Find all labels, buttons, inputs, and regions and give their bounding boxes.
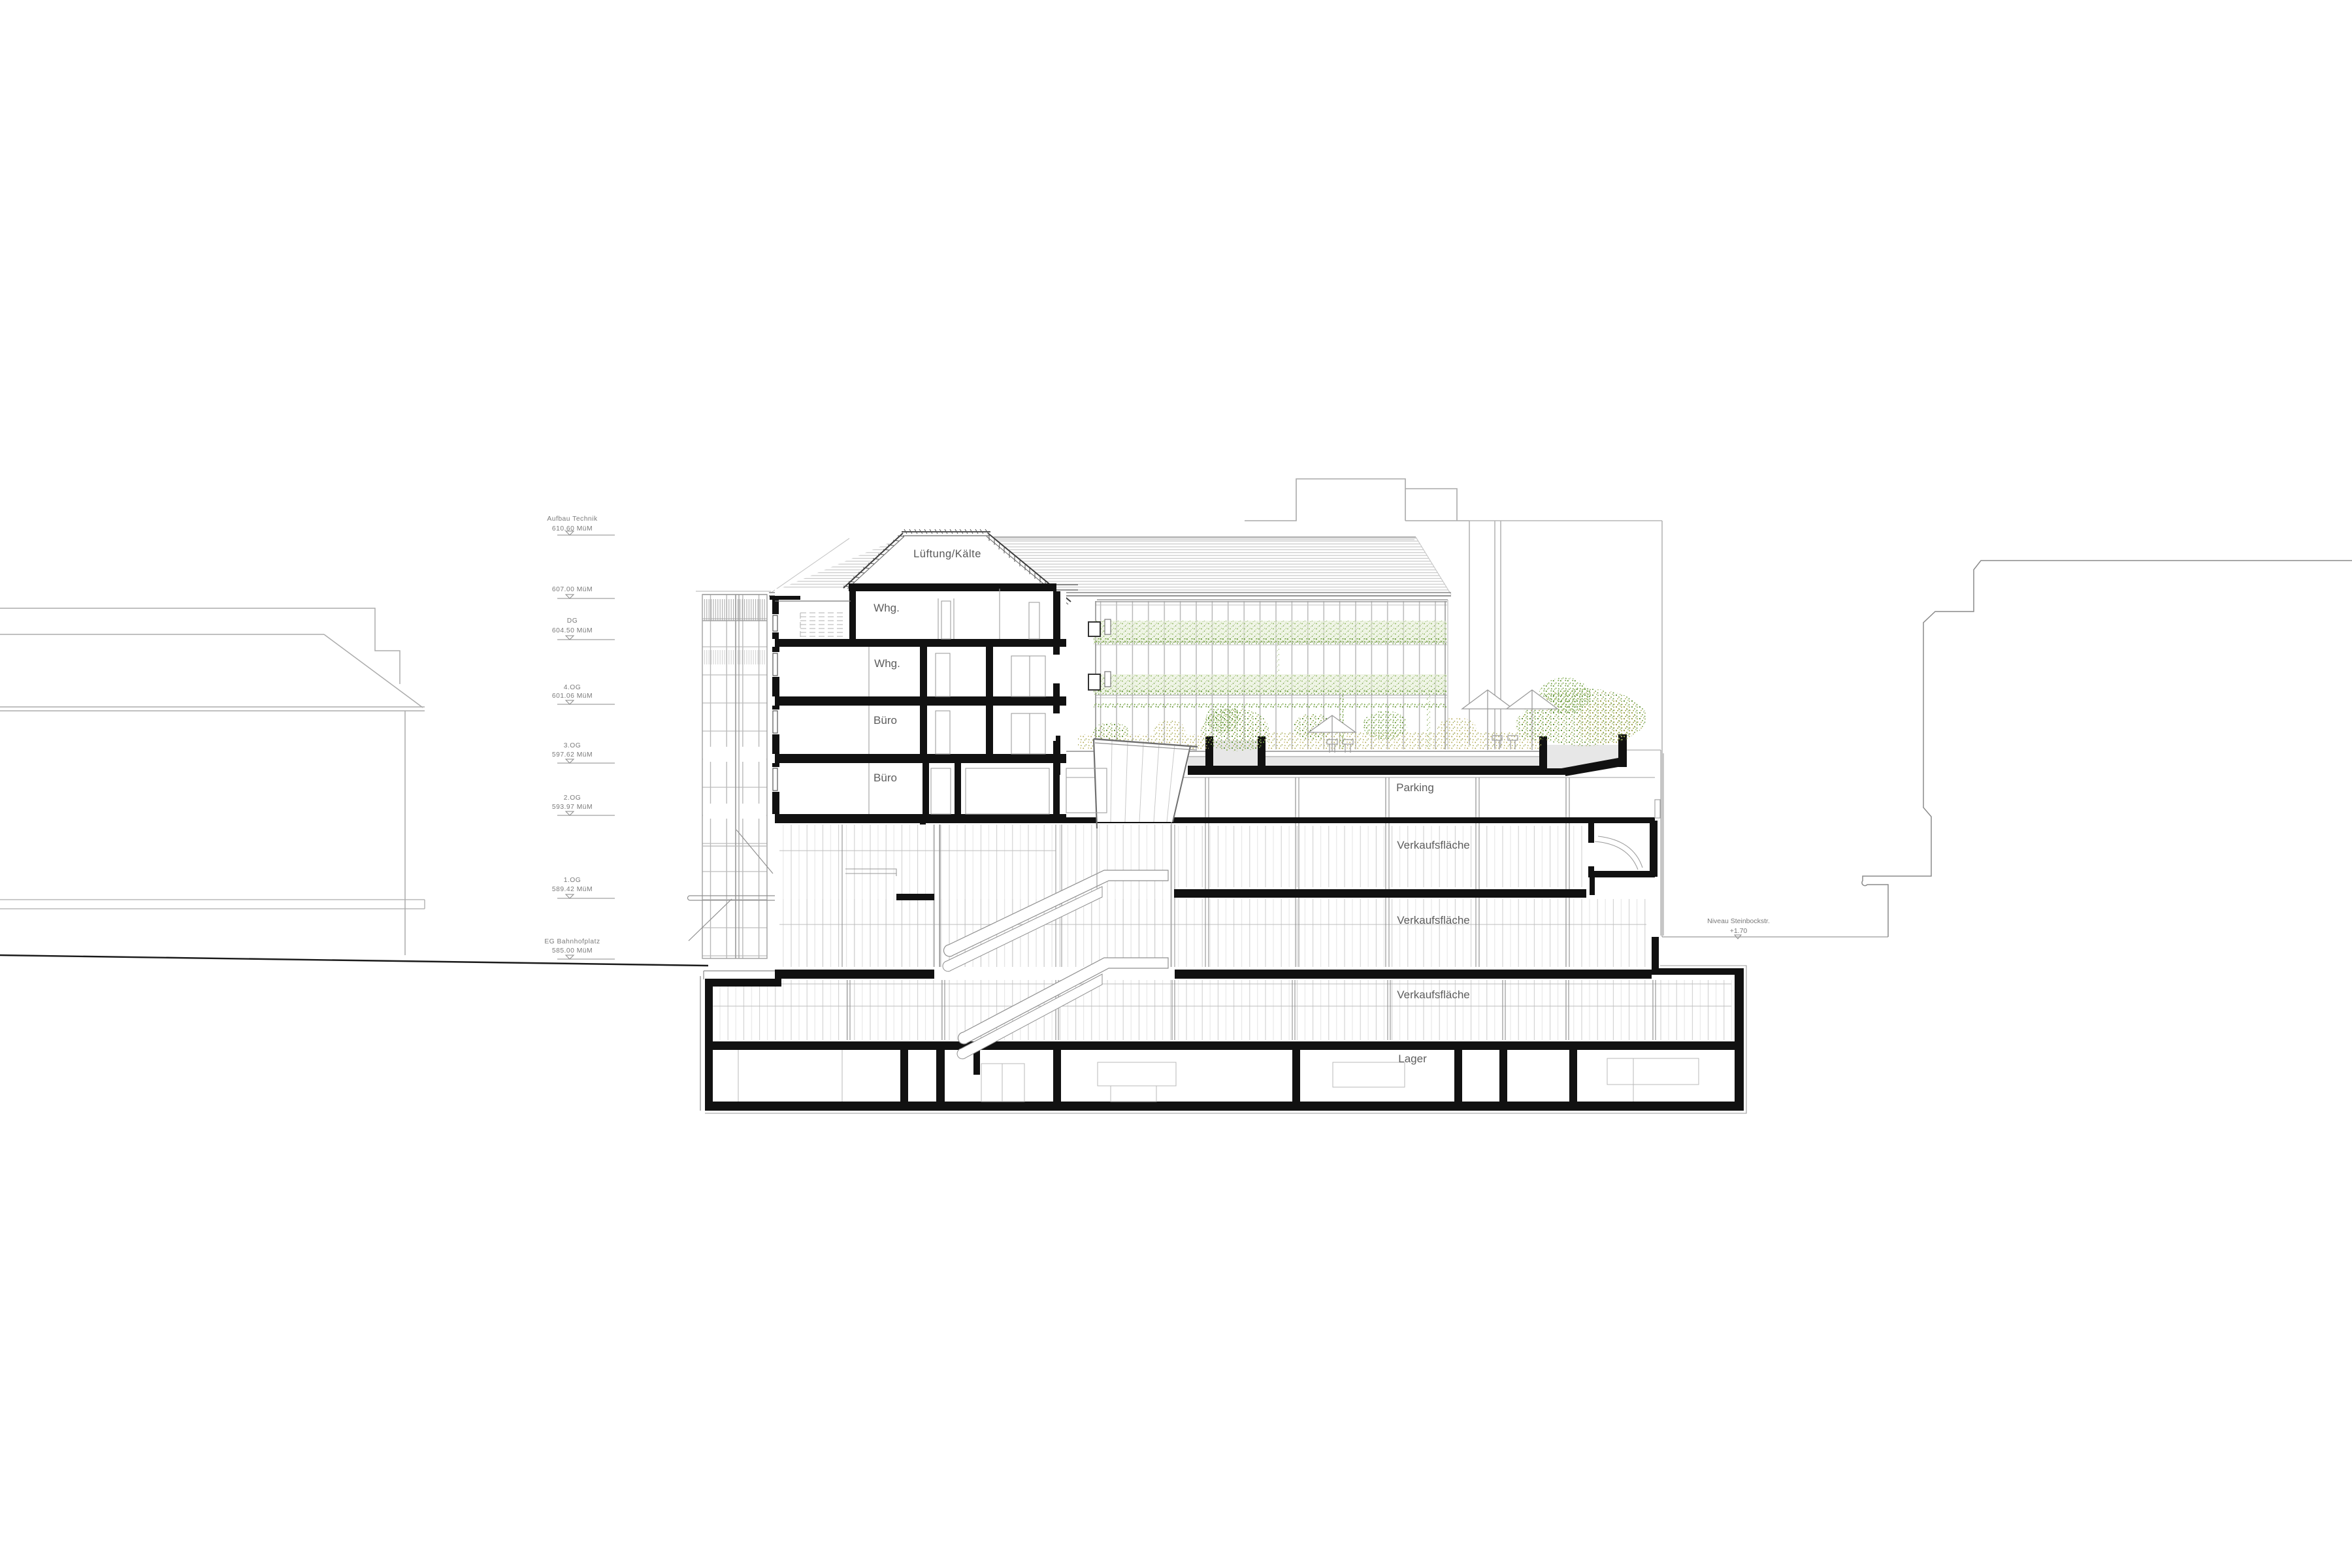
svg-text:Parking: Parking: [1396, 781, 1434, 794]
svg-text:Büro: Büro: [874, 772, 897, 784]
svg-text:DG: DG: [567, 617, 578, 625]
svg-text:1.OG: 1.OG: [564, 877, 581, 884]
svg-text:4.OG: 4.OG: [564, 684, 581, 691]
svg-text:Whg.: Whg.: [874, 657, 900, 670]
svg-text:Whg.: Whg.: [874, 602, 900, 614]
svg-text:3.OG: 3.OG: [564, 742, 581, 749]
svg-text:601.06 MüM: 601.06 MüM: [552, 693, 593, 700]
svg-text:Lüftung/Kälte: Lüftung/Kälte: [913, 548, 981, 560]
svg-text:589.42 MüM: 589.42 MüM: [552, 886, 593, 893]
svg-text:597.62 MüM: 597.62 MüM: [552, 751, 593, 759]
svg-text:EG Bahnhofplatz: EG Bahnhofplatz: [544, 938, 600, 945]
svg-text:Büro: Büro: [874, 714, 897, 727]
svg-text:Verkaufsfläche: Verkaufsfläche: [1397, 914, 1470, 926]
svg-text:585.00 MüM: 585.00 MüM: [552, 947, 593, 955]
svg-text:Verkaufsfläche: Verkaufsfläche: [1397, 988, 1470, 1001]
svg-text:Aufbau Technik: Aufbau Technik: [547, 515, 598, 523]
svg-text:604.50 MüM: 604.50 MüM: [552, 627, 593, 634]
svg-text:593.97 MüM: 593.97 MüM: [552, 804, 593, 811]
svg-text:Lager: Lager: [1398, 1053, 1427, 1065]
svg-text:607.00 MüM: 607.00 MüM: [552, 586, 593, 593]
svg-text:2.OG: 2.OG: [564, 794, 581, 802]
svg-text:Verkaufsfläche: Verkaufsfläche: [1397, 839, 1470, 851]
svg-text:+1.70: +1.70: [1730, 927, 1748, 935]
svg-text:Niveau Steinbockstr.: Niveau Steinbockstr.: [1707, 917, 1770, 925]
